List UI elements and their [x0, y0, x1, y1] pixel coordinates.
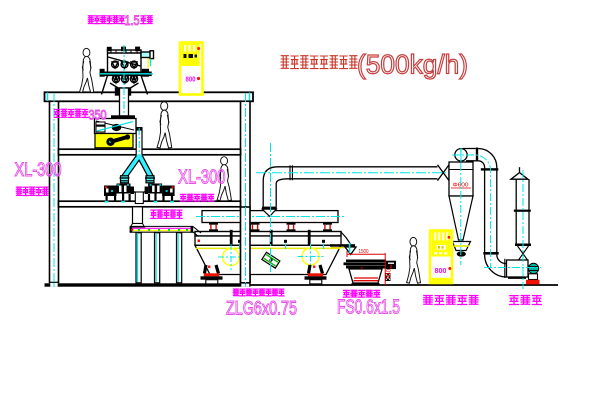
svg-text:340: 340	[387, 268, 393, 279]
svg-text:XL-300: XL-300	[178, 167, 226, 189]
svg-text:800: 800	[435, 266, 447, 275]
svg-text:800: 800	[186, 77, 196, 84]
svg-text:1.5: 1.5	[125, 12, 140, 28]
svg-text:(500kg/h): (500kg/h)	[357, 50, 468, 80]
svg-text:FS0.6x1.5: FS0.6x1.5	[337, 297, 400, 319]
svg-text:ZLG6x0.75: ZLG6x0.75	[226, 299, 297, 320]
svg-text:XL-300: XL-300	[15, 160, 62, 181]
svg-text:1500: 1500	[359, 249, 369, 255]
svg-text:350: 350	[89, 108, 107, 123]
